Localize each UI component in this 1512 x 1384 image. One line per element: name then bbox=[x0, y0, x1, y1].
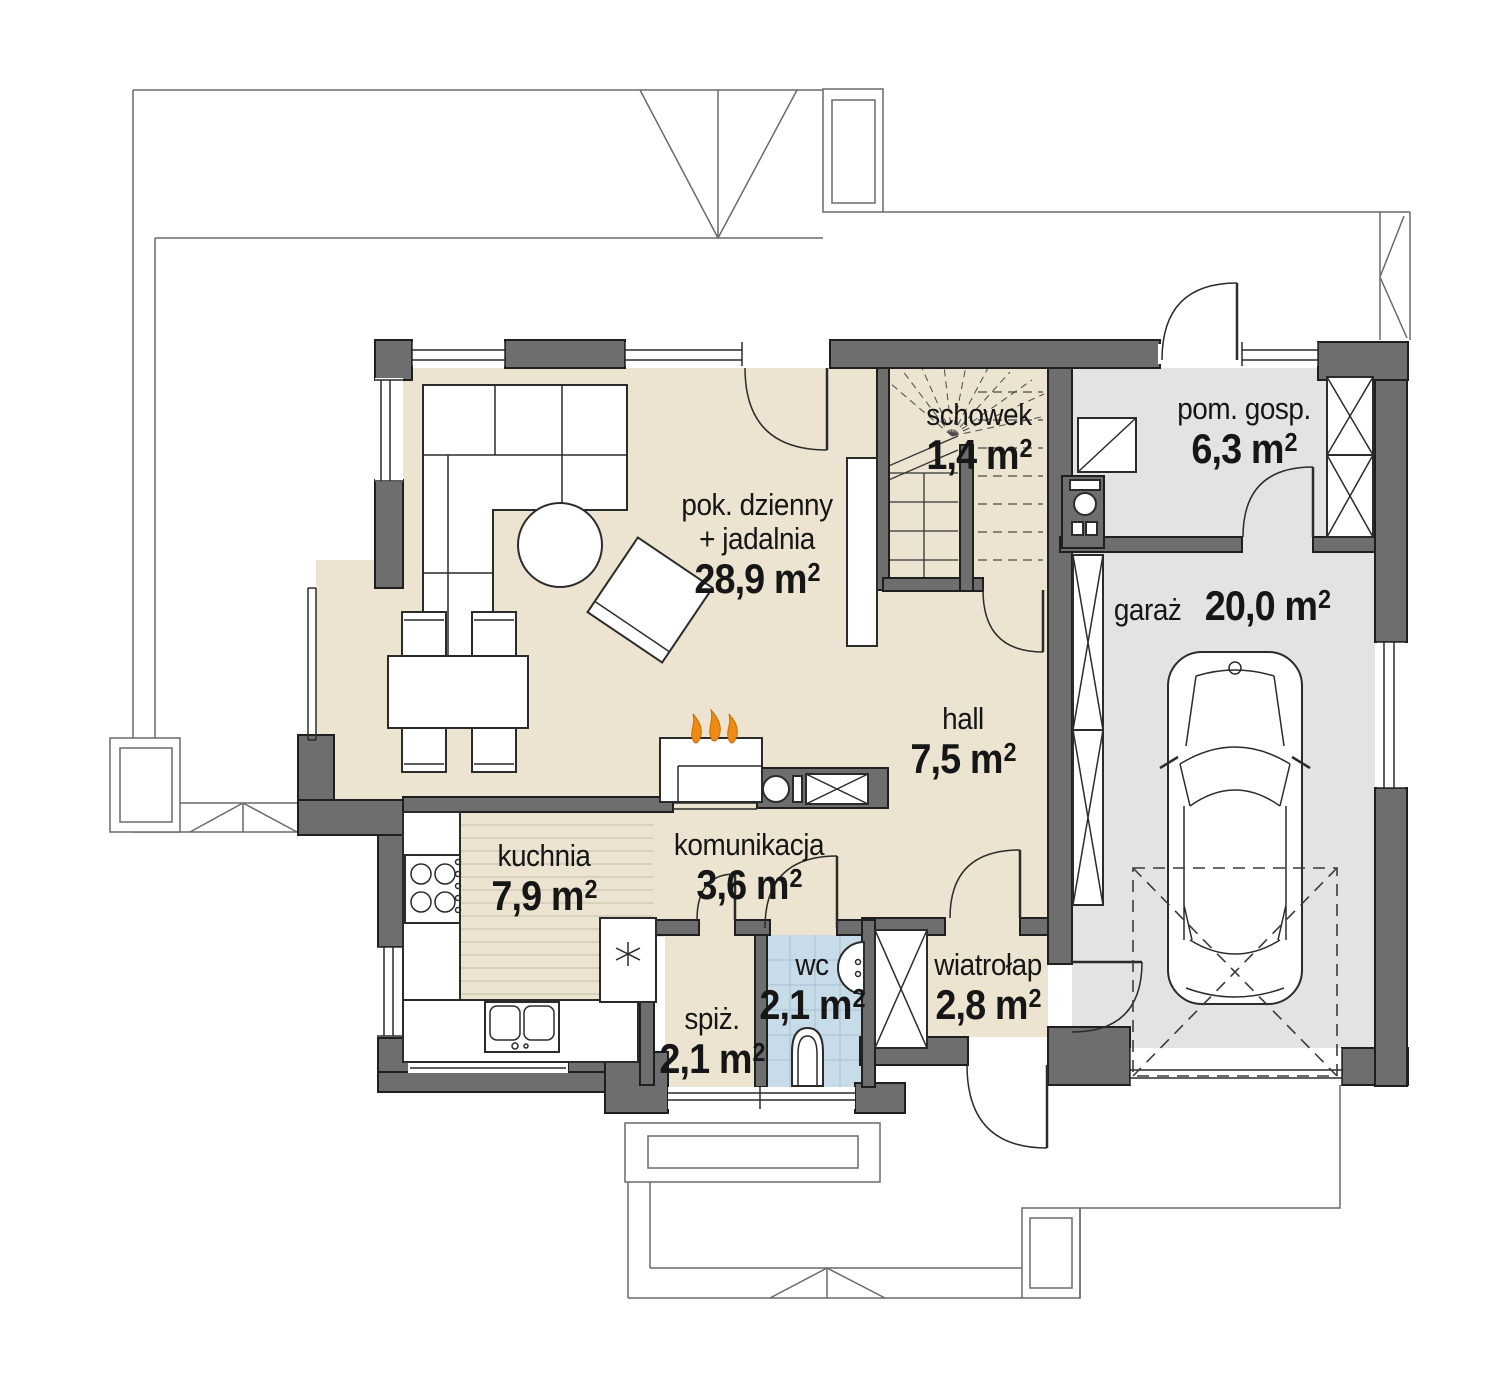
room-area: 1,4 m2 bbox=[926, 432, 1031, 478]
room-label-wiatrolap: wiatrołap 2,8 m2 bbox=[934, 948, 1042, 1028]
bay-window bbox=[308, 588, 316, 740]
room-label-living: pok. dzienny + jadalnia 28,9 m2 bbox=[681, 488, 832, 602]
room-label-spiz: spiż. 2,1 m2 bbox=[659, 1002, 764, 1082]
room-name: garaż bbox=[1114, 593, 1182, 627]
room-label-schowek: schowek 1,4 m2 bbox=[926, 398, 1031, 478]
garage-door bbox=[1130, 1048, 1342, 1085]
room-name: wc bbox=[759, 948, 864, 982]
room-area: 28,9 m2 bbox=[681, 556, 832, 602]
floor-plan-drawing bbox=[0, 0, 1512, 1384]
fridge bbox=[600, 918, 656, 1002]
room-area: 2,1 m2 bbox=[659, 1036, 764, 1082]
room-name: pok. dzienny bbox=[681, 488, 832, 522]
room-label-komunikacja: komunikacja 3,6 m2 bbox=[674, 828, 824, 908]
room-area: 20,0 m2 bbox=[1205, 583, 1330, 629]
dining-table bbox=[388, 656, 528, 728]
room-area: 7,5 m2 bbox=[910, 736, 1015, 782]
room-label-wc: wc 2,1 m2 bbox=[759, 948, 864, 1028]
laundry-sink bbox=[1070, 480, 1100, 535]
coffee-table bbox=[518, 503, 602, 587]
shelf-unit bbox=[847, 458, 877, 646]
room-area: 6,3 m2 bbox=[1177, 426, 1311, 472]
room-name: spiż. bbox=[659, 1002, 764, 1036]
room-area: 7,9 m2 bbox=[491, 873, 596, 919]
room-name: pom. gosp. bbox=[1177, 392, 1311, 426]
room-label-pom-gosp: pom. gosp. 6,3 m2 bbox=[1177, 392, 1311, 472]
room-area: 2,1 m2 bbox=[759, 982, 864, 1028]
room-area: 3,6 m2 bbox=[674, 862, 824, 908]
kitchen-stove bbox=[405, 855, 461, 923]
room-label-hall: hall 7,5 m2 bbox=[910, 702, 1015, 782]
room-name: komunikacja bbox=[674, 828, 824, 862]
room-label-garaz: garaż 20,0 m2 bbox=[1114, 583, 1330, 629]
room-label-kuchnia: kuchnia 7,9 m2 bbox=[491, 839, 596, 919]
kitchen-sink bbox=[485, 1002, 559, 1052]
room-name-line2: + jadalnia bbox=[681, 522, 832, 556]
floor-plan-page: pok. dzienny + jadalnia 28,9 m2 schowek … bbox=[0, 0, 1512, 1384]
media-wall bbox=[763, 774, 868, 804]
wc-toilet bbox=[792, 1028, 823, 1086]
room-name: wiatrołap bbox=[934, 948, 1042, 982]
room-name: kuchnia bbox=[491, 839, 596, 873]
room-name: schowek bbox=[926, 398, 1031, 432]
car bbox=[1160, 652, 1310, 1004]
room-name: hall bbox=[910, 702, 1015, 736]
room-area: 2,8 m2 bbox=[934, 982, 1042, 1028]
washing-machine bbox=[1078, 418, 1136, 472]
